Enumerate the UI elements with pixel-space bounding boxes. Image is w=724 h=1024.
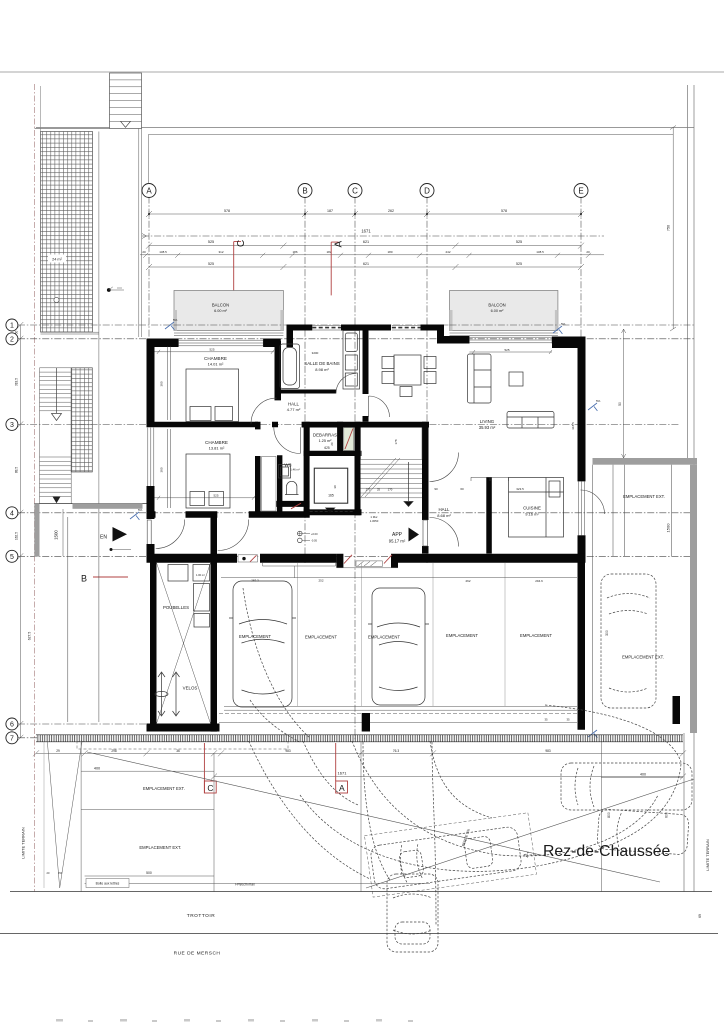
- svg-text:180: 180: [387, 250, 392, 254]
- svg-text:76.3: 76.3: [393, 749, 399, 753]
- svg-text:TROTTOIR: TROTTOIR: [187, 913, 215, 919]
- svg-text:983: 983: [285, 749, 291, 753]
- svg-text:252: 252: [318, 579, 323, 583]
- svg-text:578: 578: [501, 209, 507, 213]
- svg-text:983: 983: [545, 749, 551, 753]
- svg-text:SALLE DE BAINS: SALLE DE BAINS: [304, 361, 339, 366]
- svg-text:20: 20: [142, 250, 146, 254]
- svg-text:EMPLACEMENT EXT.: EMPLACEMENT EXT.: [143, 786, 185, 791]
- svg-text:165: 165: [328, 494, 334, 498]
- svg-text:294.6: 294.6: [535, 579, 543, 583]
- svg-text:380: 380: [159, 381, 163, 386]
- svg-text:312: 312: [218, 250, 223, 254]
- svg-text:D: D: [424, 186, 430, 195]
- svg-text:4: 4: [10, 510, 14, 517]
- svg-text:EMPLACEMENT: EMPLACEMENT: [446, 633, 478, 638]
- svg-text:242: 242: [445, 250, 450, 254]
- svg-text:20: 20: [586, 250, 590, 254]
- svg-text:Rez-de-Chaussée: Rez-de-Chaussée: [543, 843, 671, 860]
- svg-text:LIMITE TERRAIN: LIMITE TERRAIN: [21, 827, 26, 859]
- svg-text:EMPLACEMENT EXT.: EMPLACEMENT EXT.: [622, 655, 664, 660]
- svg-text:25: 25: [377, 488, 381, 492]
- svg-text:1500: 1500: [666, 523, 671, 533]
- svg-text:CHAMBRE: CHAMBRE: [205, 440, 228, 445]
- svg-text:186: 186: [292, 250, 297, 254]
- svg-text:HALL: HALL: [288, 402, 300, 407]
- svg-text:3200: 3200: [312, 351, 319, 355]
- svg-text:6.00 m²: 6.00 m²: [491, 309, 505, 313]
- svg-text:+0.00: +0.00: [311, 532, 318, 536]
- svg-text:88.5: 88.5: [15, 467, 19, 473]
- svg-text:36: 36: [176, 749, 180, 753]
- svg-text:625: 625: [324, 446, 330, 450]
- svg-text:H=80cm max: H=80cm max: [235, 883, 255, 887]
- svg-text:A: A: [339, 783, 345, 793]
- svg-text:400: 400: [94, 767, 100, 771]
- svg-text:525: 525: [516, 262, 522, 266]
- svg-text:EMPLACEMENT EXT.: EMPLACEMENT EXT.: [623, 494, 665, 499]
- svg-text:1671: 1671: [338, 771, 348, 776]
- svg-text:500: 500: [146, 871, 152, 875]
- svg-text:EMPLACEMENT EXT.: EMPLACEMENT EXT.: [139, 845, 181, 850]
- svg-text:8.68 m²: 8.68 m²: [437, 513, 451, 518]
- svg-text:9.16 m²: 9.16 m²: [525, 512, 539, 517]
- svg-text:BALCON: BALCON: [488, 302, 505, 307]
- svg-text:5: 5: [10, 554, 14, 561]
- svg-text:DEBARRAS: DEBARRAS: [313, 433, 337, 438]
- svg-text:525: 525: [209, 348, 214, 352]
- svg-text:138.5: 138.5: [536, 250, 544, 254]
- svg-text:525: 525: [213, 493, 218, 497]
- svg-text:7: 7: [10, 735, 14, 742]
- svg-text:1.00 m²: 1.00 m²: [196, 573, 205, 577]
- svg-text:A: A: [334, 241, 345, 248]
- svg-text:A: A: [146, 186, 152, 195]
- svg-text:1.46 m²: 1.46 m²: [290, 468, 300, 472]
- svg-text:LIMITE TERRAIN: LIMITE TERRAIN: [705, 839, 710, 871]
- svg-text:600: 600: [665, 812, 669, 818]
- svg-text:4.77 m²: 4.77 m²: [287, 407, 301, 412]
- svg-text:50: 50: [618, 402, 622, 406]
- svg-text:90: 90: [434, 487, 438, 491]
- svg-text:LIVING: LIVING: [480, 419, 495, 424]
- svg-text:283.3: 283.3: [251, 579, 259, 583]
- svg-text:187: 187: [327, 209, 333, 213]
- svg-text:2: 2: [10, 336, 14, 343]
- svg-text:C: C: [352, 186, 358, 195]
- svg-text:35: 35: [544, 718, 548, 722]
- svg-text:262: 262: [388, 209, 394, 213]
- svg-text:APP: APP: [392, 532, 403, 538]
- svg-text:8.98 m²: 8.98 m²: [315, 367, 329, 372]
- svg-text:B: B: [81, 574, 87, 584]
- svg-text:24 m²: 24 m²: [52, 258, 62, 262]
- svg-text:5%: 5%: [138, 508, 143, 512]
- svg-text:C: C: [207, 783, 213, 793]
- svg-text:29: 29: [56, 749, 60, 753]
- svg-text:CUISINE: CUISINE: [523, 506, 541, 511]
- svg-text:170: 170: [388, 488, 393, 492]
- svg-text:525: 525: [516, 240, 522, 244]
- svg-text:EMPLACEMENT: EMPLACEMENT: [368, 635, 400, 640]
- svg-text:HALL: HALL: [439, 507, 451, 512]
- svg-text:1: 1: [10, 323, 14, 330]
- svg-text:300: 300: [605, 630, 609, 636]
- svg-text:800: 800: [607, 812, 611, 818]
- svg-text:3: 3: [10, 422, 14, 429]
- svg-text:5%: 5%: [173, 318, 178, 322]
- svg-text:5%: 5%: [596, 399, 601, 403]
- svg-text:380: 380: [159, 467, 163, 472]
- svg-text:6.00 m²: 6.00 m²: [214, 309, 228, 313]
- svg-text:621: 621: [363, 240, 369, 244]
- svg-text:750: 750: [667, 225, 671, 231]
- svg-text:1500: 1500: [54, 530, 59, 540]
- svg-text:525: 525: [208, 240, 214, 244]
- svg-text:525: 525: [208, 262, 214, 266]
- svg-text:621: 621: [363, 262, 369, 266]
- svg-text:178: 178: [394, 439, 398, 444]
- svg-text:30: 30: [333, 485, 337, 489]
- svg-text:EMPLACEMENT: EMPLACEMENT: [239, 634, 271, 639]
- svg-text:5%: 5%: [561, 322, 566, 326]
- svg-text:VELOS: VELOS: [183, 686, 198, 691]
- svg-text:B: B: [302, 186, 307, 195]
- svg-text:170: 170: [366, 488, 371, 492]
- svg-text:69: 69: [698, 914, 702, 918]
- svg-text:C: C: [236, 240, 247, 247]
- svg-text:CHAMBRE: CHAMBRE: [204, 356, 227, 361]
- svg-text:14.01 m²: 14.01 m²: [208, 362, 224, 367]
- svg-text:627.5: 627.5: [28, 632, 32, 641]
- svg-text:318.5: 318.5: [15, 378, 19, 386]
- svg-text:162.5: 162.5: [15, 532, 19, 540]
- svg-text:1671: 1671: [361, 229, 371, 234]
- svg-text:EMPLACEMENT: EMPLACEMENT: [520, 633, 552, 638]
- svg-text:138.5: 138.5: [159, 250, 167, 254]
- svg-text:95.17 m²: 95.17 m²: [389, 539, 406, 544]
- svg-text:RUE DE MERSCH: RUE DE MERSCH: [174, 951, 221, 957]
- svg-text:262: 262: [465, 579, 470, 583]
- svg-text:6: 6: [10, 722, 14, 729]
- svg-text:Boite aux lettres: Boite aux lettres: [96, 882, 120, 886]
- svg-text:323.5: 323.5: [516, 487, 524, 491]
- svg-text:525: 525: [504, 348, 509, 352]
- svg-text:318.5: 318.5: [571, 422, 575, 430]
- svg-text:EN: EN: [100, 535, 107, 541]
- svg-text:BALCON: BALCON: [212, 302, 229, 307]
- svg-text:-0.05: -0.05: [311, 539, 317, 543]
- svg-text:400: 400: [640, 773, 646, 777]
- svg-text:298: 298: [111, 749, 117, 753]
- svg-text:35: 35: [566, 718, 570, 722]
- svg-text:E: E: [578, 186, 583, 195]
- svg-text:POUBELLES: POUBELLES: [163, 605, 189, 610]
- svg-text:35.93 m²: 35.93 m²: [479, 425, 496, 430]
- svg-text:20: 20: [330, 442, 334, 446]
- svg-text:EMPLACEMENT: EMPLACEMENT: [305, 635, 337, 640]
- svg-text:60: 60: [460, 487, 464, 491]
- svg-text:578: 578: [224, 209, 230, 213]
- svg-text:1.25 m²: 1.25 m²: [319, 439, 333, 443]
- svg-text:13.81 m²: 13.81 m²: [209, 446, 225, 451]
- svg-text:1.3050: 1.3050: [370, 519, 379, 523]
